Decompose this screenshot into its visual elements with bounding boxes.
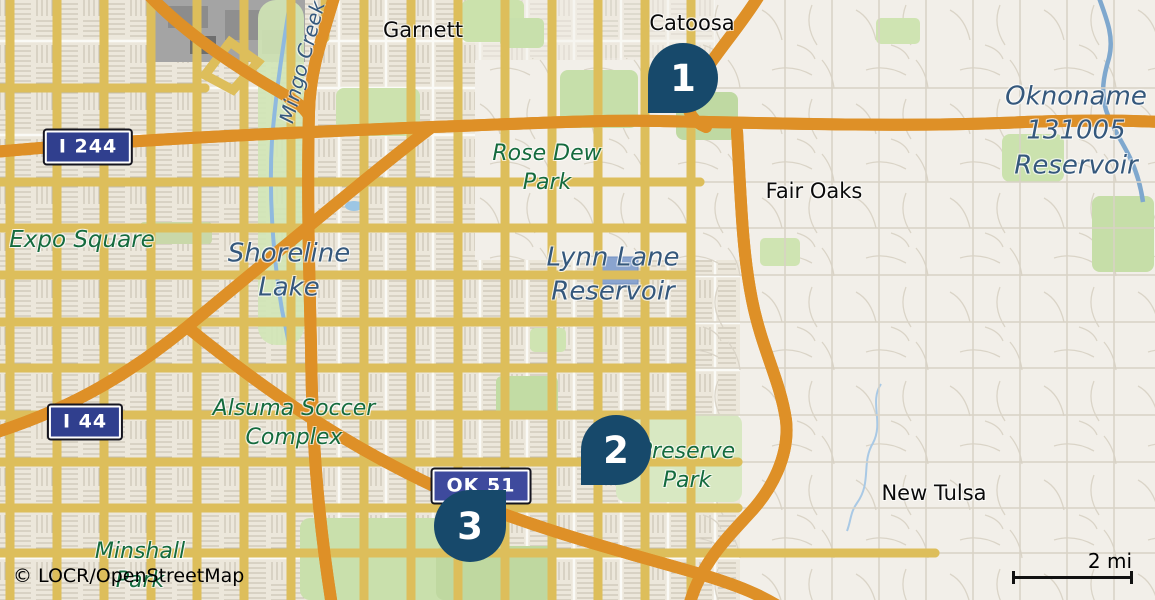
map-marker-1[interactable]: 1 — [648, 43, 718, 113]
area-label-alsuma-soccer-complex: Alsuma Soccer Complex — [213, 394, 376, 452]
highway-shield-i244: I 244 — [45, 131, 131, 164]
scale-bar-tick-left — [1012, 571, 1015, 584]
map-marker-2[interactable]: 2 — [581, 415, 651, 485]
highway-shield-i44: I 44 — [49, 406, 121, 439]
area-label-preserve-park: Preserve Park — [639, 437, 735, 495]
place-label-fair-oaks: Fair Oaks — [766, 178, 863, 206]
area-label-expo-square: Expo Square — [9, 225, 155, 255]
map-attribution: © LOCR/OpenStreetMap — [13, 565, 244, 587]
water-label-oknoname-reservoir: Oknoname 131005 Reservoir — [1005, 80, 1147, 183]
water-label-shoreline-lake: Shoreline Lake — [228, 237, 351, 306]
map-viewport[interactable]: Garnett Catoosa Fair Oaks New Tulsa Expo… — [0, 0, 1155, 600]
scale-bar-tick-right — [1130, 571, 1133, 584]
water-label-lynn-lane-reservoir: Lynn Lane Reservoir — [546, 241, 679, 310]
scale-bar-label: 2 mi — [1060, 549, 1132, 573]
place-label-catoosa: Catoosa — [649, 10, 734, 38]
place-label-garnett: Garnett — [383, 17, 463, 45]
area-label-rose-dew-park: Rose Dew Park — [492, 139, 601, 197]
scale-bar — [1012, 576, 1133, 579]
map-marker-3[interactable]: 3 — [434, 490, 506, 562]
place-label-new-tulsa: New Tulsa — [881, 480, 986, 508]
